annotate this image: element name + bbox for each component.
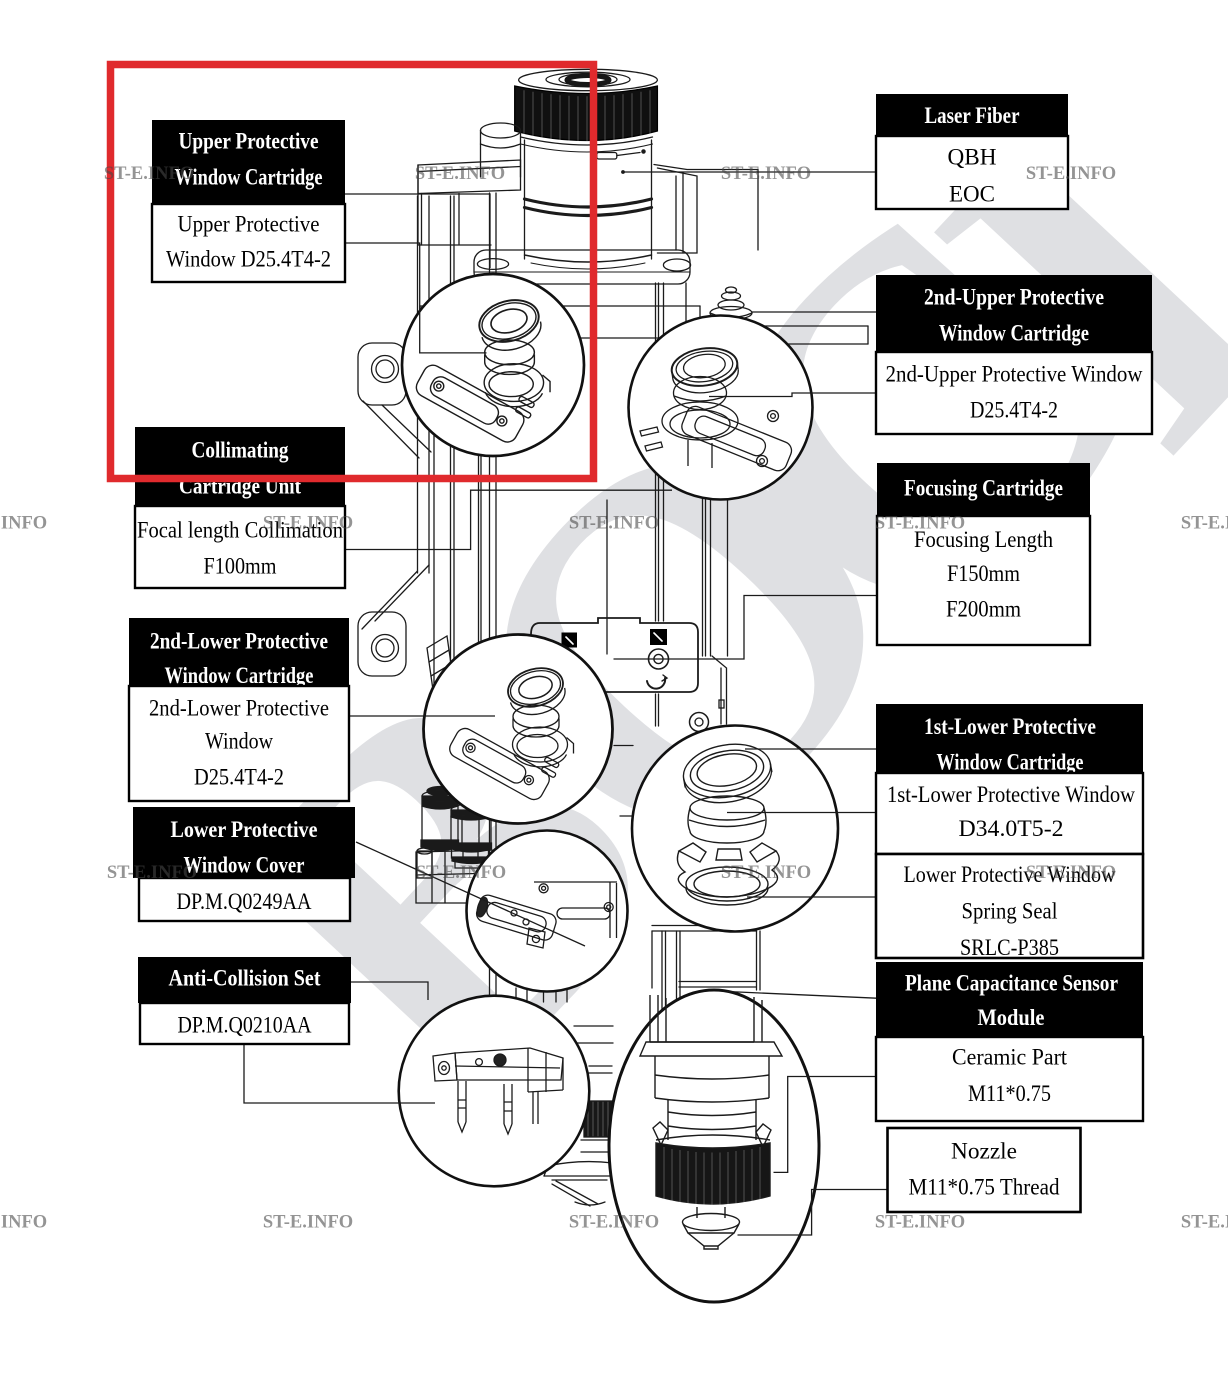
svg-text:Window: Window bbox=[205, 729, 273, 755]
svg-text:D25.4T4-2: D25.4T4-2 bbox=[970, 398, 1058, 424]
svg-text:DP.M.Q0249AA: DP.M.Q0249AA bbox=[177, 889, 312, 915]
svg-text:ST-E.INFO: ST-E.INFO bbox=[0, 1213, 47, 1233]
svg-text:M11*0.75 Thread: M11*0.75 Thread bbox=[909, 1175, 1060, 1201]
svg-text:ST-E.INFO: ST-E.INFO bbox=[721, 863, 811, 883]
svg-text:ST-E.INFO: ST-E.INFO bbox=[416, 863, 506, 883]
svg-text:ST-E.INFO: ST-E.INFO bbox=[263, 1213, 353, 1233]
svg-text:DP.M.Q0210AA: DP.M.Q0210AA bbox=[178, 1013, 312, 1039]
svg-text:ST-E.INFO: ST-E.INFO bbox=[875, 514, 965, 534]
svg-text:D25.4T4-2: D25.4T4-2 bbox=[194, 765, 284, 791]
svg-text:Focusing Cartridge: Focusing Cartridge bbox=[904, 476, 1063, 502]
svg-text:Nozzle: Nozzle bbox=[951, 1139, 1017, 1165]
svg-text:ST-E.INFO: ST-E.INFO bbox=[721, 164, 811, 184]
svg-text:Laser Fiber: Laser Fiber bbox=[925, 103, 1020, 129]
svg-text:Module: Module bbox=[978, 1005, 1045, 1031]
svg-text:Upper Protective: Upper Protective bbox=[179, 128, 319, 154]
svg-text:D34.0T5-2: D34.0T5-2 bbox=[959, 816, 1064, 842]
svg-text:ST-E.INFO: ST-E.INFO bbox=[1181, 1213, 1228, 1233]
svg-text:SRLC-P385: SRLC-P385 bbox=[960, 935, 1059, 961]
svg-text:M11*0.75: M11*0.75 bbox=[968, 1081, 1051, 1107]
svg-text:2nd-Lower Protective: 2nd-Lower Protective bbox=[149, 696, 329, 722]
svg-text:F100mm: F100mm bbox=[204, 554, 277, 580]
svg-text:ST-E.INFO: ST-E.INFO bbox=[415, 164, 505, 184]
svg-text:Anti-Collision Set: Anti-Collision Set bbox=[169, 966, 321, 992]
svg-text:2nd-Lower Protective: 2nd-Lower Protective bbox=[150, 629, 328, 655]
svg-text:Ceramic Part: Ceramic Part bbox=[952, 1045, 1067, 1071]
svg-text:ST-E.INFO: ST-E.INFO bbox=[263, 514, 353, 534]
svg-text:2nd-Upper Protective: 2nd-Upper Protective bbox=[924, 285, 1104, 311]
svg-text:ST-E.INFO: ST-E.INFO bbox=[1026, 164, 1116, 184]
svg-text:ST-E.INFO: ST-E.INFO bbox=[569, 514, 659, 534]
svg-text:ST-E.INFO: ST-E.INFO bbox=[569, 1213, 659, 1233]
svg-text:Window Cover: Window Cover bbox=[184, 852, 305, 878]
svg-text:ST-E.INFO: ST-E.INFO bbox=[107, 863, 197, 883]
svg-text:ST-E.INFO: ST-E.INFO bbox=[1026, 863, 1116, 883]
svg-text:QBH: QBH bbox=[948, 145, 997, 171]
svg-text:Window Cartridge: Window Cartridge bbox=[175, 164, 323, 190]
svg-text:ST-E.INFO: ST-E.INFO bbox=[104, 164, 194, 184]
svg-text:Window Cartridge: Window Cartridge bbox=[939, 321, 1089, 347]
svg-text:1st-Lower Protective: 1st-Lower Protective bbox=[924, 714, 1096, 740]
svg-text:1st-Lower Protective Window: 1st-Lower Protective Window bbox=[887, 782, 1135, 808]
svg-text:F150mm: F150mm bbox=[947, 561, 1020, 587]
svg-text:Lower Protective: Lower Protective bbox=[171, 817, 318, 843]
svg-text:F200mm: F200mm bbox=[946, 597, 1021, 623]
svg-text:Window D25.4T4-2: Window D25.4T4-2 bbox=[166, 247, 331, 273]
svg-text:ST-E.INFO: ST-E.INFO bbox=[875, 1213, 965, 1233]
svg-text:Upper Protective: Upper Protective bbox=[178, 212, 320, 238]
svg-text:Window Cartridge: Window Cartridge bbox=[937, 749, 1084, 775]
svg-text:EOC: EOC bbox=[949, 181, 995, 207]
svg-text:Spring Seal: Spring Seal bbox=[962, 899, 1058, 925]
svg-text:ST-E.INFO: ST-E.INFO bbox=[1181, 514, 1228, 534]
svg-text:2nd-Upper Protective Window: 2nd-Upper Protective Window bbox=[886, 362, 1143, 388]
svg-text:Collimating: Collimating bbox=[192, 438, 289, 464]
svg-text:Plane Capacitance Sensor: Plane Capacitance Sensor bbox=[905, 971, 1118, 997]
svg-text:ST-E.INFO: ST-E.INFO bbox=[0, 514, 47, 534]
